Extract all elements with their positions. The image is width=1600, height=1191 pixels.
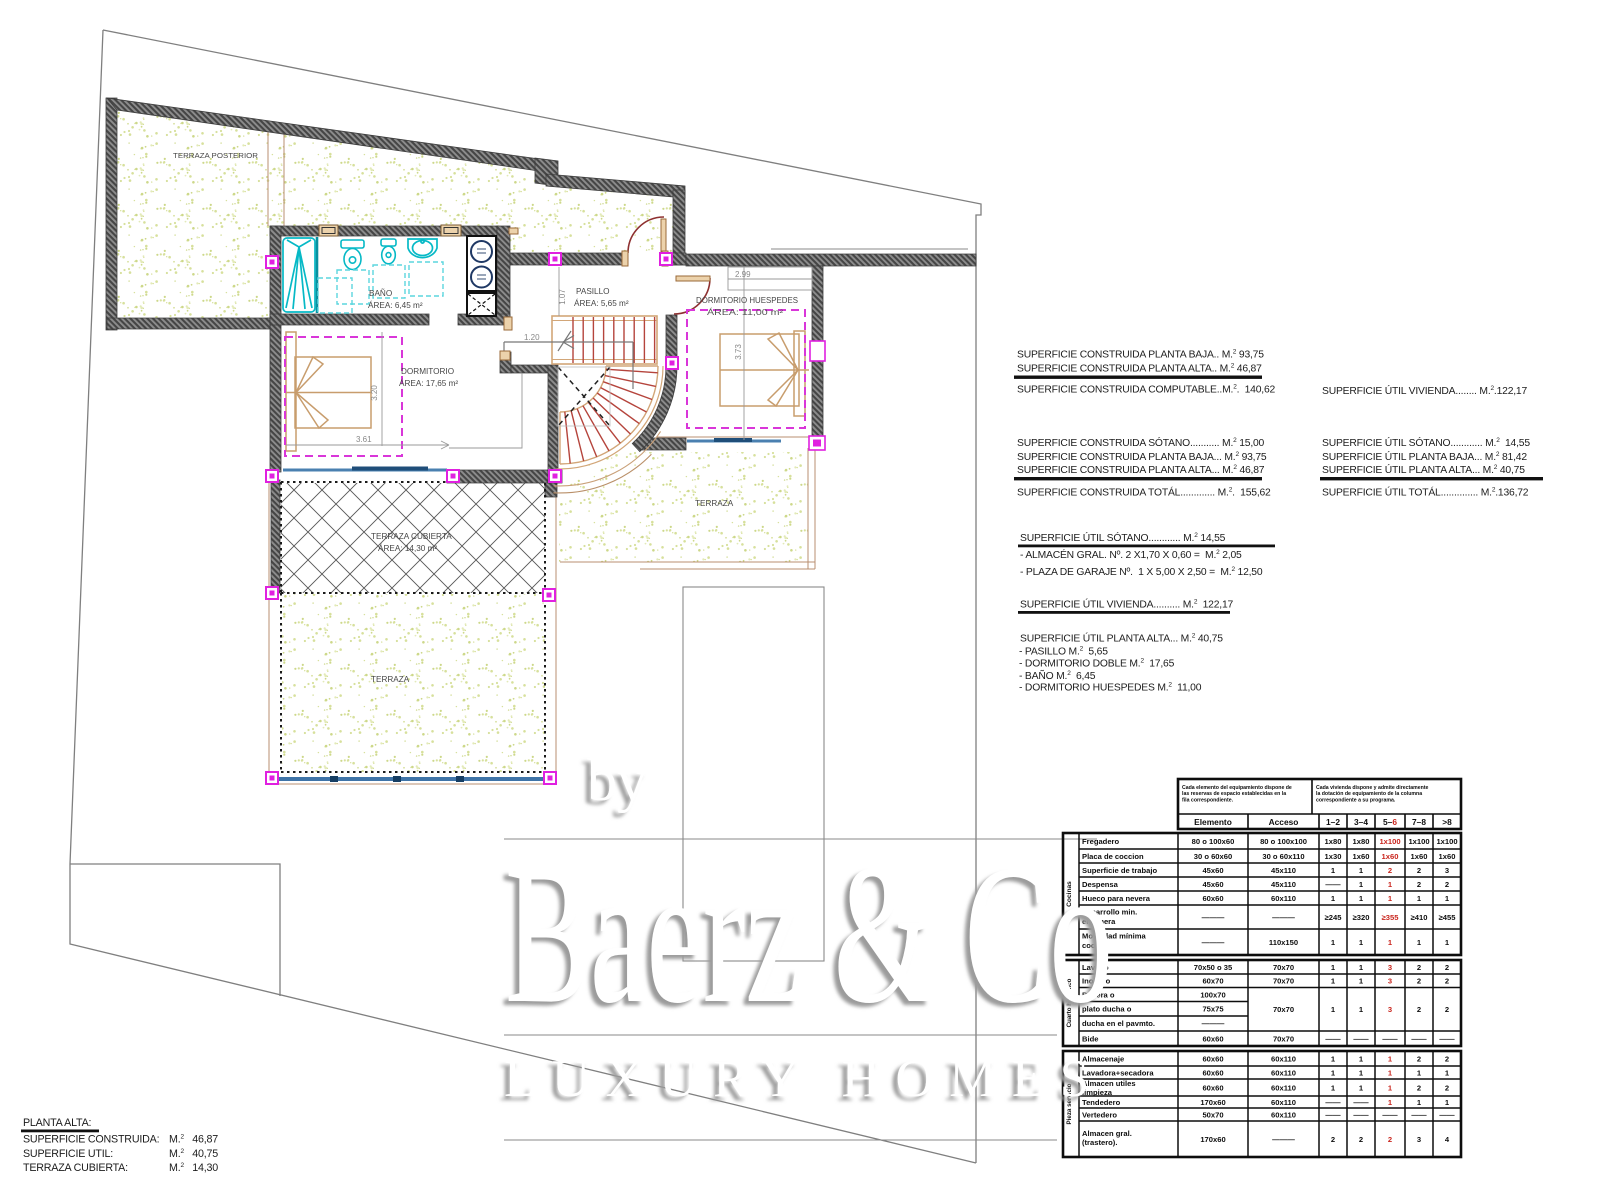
svg-text:——: —— [1382, 1034, 1398, 1043]
svg-text:——: —— [1353, 1110, 1369, 1119]
svg-text:by: by [587, 747, 647, 813]
svg-text:SUPERFICIE ÚTIL TOTÁL.........: SUPERFICIE ÚTIL TOTÁL.............. M.2.… [1322, 486, 1529, 499]
svg-text:3: 3 [1388, 977, 1392, 986]
svg-text:SUPERFICIE UTIL:: SUPERFICIE UTIL: [23, 1148, 113, 1160]
svg-text:2: 2 [1417, 1083, 1421, 1092]
svg-text:5–6: 5–6 [1383, 817, 1397, 827]
svg-text:SUPERFICIE CONSTRUIDA COMPUTAB: SUPERFICIE CONSTRUIDA COMPUTABLE..M.2. 1… [1017, 384, 1276, 396]
svg-text:2: 2 [1417, 1054, 1421, 1063]
svg-text:——: —— [1325, 1034, 1341, 1043]
svg-text:60x110: 60x110 [1271, 1083, 1296, 1092]
svg-text:PASILLO: PASILLO [576, 287, 610, 296]
svg-text:- DORMITORIO HUESPEDES M.2 11: - DORMITORIO HUESPEDES M.2 11,00 [1019, 682, 1202, 694]
svg-text:60x110: 60x110 [1271, 1054, 1296, 1063]
svg-text:1x60: 1x60 [1382, 852, 1399, 861]
svg-text:2: 2 [1417, 977, 1421, 986]
svg-text:- DORMITORIO DOBLE M.2 17,65: - DORMITORIO DOBLE M.2 17,65 [1019, 658, 1175, 670]
svg-text:60x110: 60x110 [1271, 1068, 1296, 1077]
svg-text:3.20: 3.20 [370, 385, 379, 401]
svg-text:1x100: 1x100 [1379, 837, 1400, 846]
svg-text:30 o 60x110: 30 o 60x110 [1262, 852, 1304, 861]
svg-text:30 o 60x60: 30 o 60x60 [1194, 852, 1232, 861]
svg-text:Cada elemento del equipamiento: Cada elemento del equipamiento dispone d… [1182, 785, 1292, 791]
svg-text:——: —— [1439, 1110, 1455, 1119]
svg-text:LUXURY HOMES: LUXURY HOMES [504, 1050, 1105, 1108]
svg-text:PLANTA ALTA:: PLANTA ALTA: [23, 1117, 91, 1129]
svg-text:110x150: 110x150 [1269, 938, 1298, 947]
svg-text:45x60: 45x60 [1202, 880, 1223, 889]
svg-text:2: 2 [1331, 1135, 1335, 1144]
svg-text:SUPERFICIE ÚTIL VIVIENDA......: SUPERFICIE ÚTIL VIVIENDA........ M.2.122… [1322, 384, 1527, 397]
svg-text:1x100: 1x100 [1408, 837, 1429, 846]
svg-text:70x70: 70x70 [1273, 963, 1294, 972]
svg-text:TERRAZA: TERRAZA [695, 499, 734, 508]
svg-text:——: —— [1382, 1110, 1398, 1119]
svg-text:——: —— [1325, 1098, 1341, 1107]
svg-text:2: 2 [1417, 866, 1421, 875]
svg-text:3: 3 [1445, 866, 1449, 875]
svg-text:——: —— [1439, 1034, 1455, 1043]
svg-text:2: 2 [1445, 963, 1449, 972]
svg-text:1–2: 1–2 [1326, 817, 1340, 827]
svg-text:45x60: 45x60 [1202, 866, 1223, 875]
svg-text:DORMITORIO HUESPEDES: DORMITORIO HUESPEDES [696, 296, 798, 305]
svg-text:———: ——— [1202, 913, 1225, 922]
svg-text:——: —— [1325, 880, 1341, 889]
svg-text:60x60: 60x60 [1202, 1068, 1223, 1077]
svg-text:100x70: 100x70 [1200, 991, 1225, 1000]
svg-text:≥410: ≥410 [1411, 913, 1428, 922]
svg-text:SUPERFICIE CONSTRUIDA:: SUPERFICIE CONSTRUIDA: [23, 1134, 159, 1146]
svg-text:1x30: 1x30 [1325, 852, 1342, 861]
svg-text:M.2 46,87: M.2 46,87 [169, 1134, 218, 1146]
svg-text:M.2 14,30: M.2 14,30 [169, 1162, 218, 1174]
svg-text:ÁREA: 6,45 m²: ÁREA: 6,45 m² [368, 300, 423, 310]
svg-text:70x70: 70x70 [1273, 1005, 1294, 1014]
svg-text:1.20: 1.20 [524, 333, 540, 342]
svg-text:Acceso: Acceso [1269, 817, 1299, 827]
svg-text:——: —— [1353, 1034, 1369, 1043]
svg-text:ÁREA: 14,30 m²: ÁREA: 14,30 m² [378, 543, 437, 553]
svg-text:2: 2 [1445, 880, 1449, 889]
svg-text:Cada vivienda dispone y admite: Cada vivienda dispone y admite directame… [1316, 785, 1429, 791]
svg-text:1x80: 1x80 [1325, 837, 1342, 846]
svg-text:- PLAZA DE GARAJE Nº. 1 X 5,0: - PLAZA DE GARAJE Nº. 1 X 5,00 X 2,50 = … [1020, 566, 1263, 578]
svg-text:45x110: 45x110 [1271, 880, 1296, 889]
svg-text:1x60: 1x60 [1411, 852, 1428, 861]
svg-text:70x70: 70x70 [1273, 1034, 1294, 1043]
svg-text:correspondiente a su programa.: correspondiente a su programa. [1316, 797, 1396, 803]
svg-text:1.07: 1.07 [558, 289, 567, 305]
svg-text:SUPERFICIE CONSTRUIDA PLANTA B: SUPERFICIE CONSTRUIDA PLANTA BAJA.. M.2 … [1017, 349, 1264, 361]
svg-text:3–4: 3–4 [1354, 817, 1368, 827]
svg-text:60x110: 60x110 [1271, 1110, 1296, 1119]
svg-text:60x60: 60x60 [1202, 894, 1223, 903]
svg-text:>8: >8 [1442, 817, 1452, 827]
svg-text:60x60: 60x60 [1202, 1054, 1223, 1063]
svg-text:ÁREA: 5,65 m²: ÁREA: 5,65 m² [574, 298, 629, 308]
svg-text:———: ——— [1272, 1135, 1295, 1144]
svg-text:2: 2 [1359, 1135, 1363, 1144]
svg-text:3: 3 [1417, 1135, 1421, 1144]
svg-text:2: 2 [1417, 880, 1421, 889]
svg-text:2.99: 2.99 [735, 270, 751, 279]
svg-text:7–8: 7–8 [1412, 817, 1426, 827]
svg-text:≥320: ≥320 [1353, 913, 1370, 922]
svg-text:TERRAZA: TERRAZA [371, 675, 410, 684]
svg-text:2: 2 [1417, 1005, 1421, 1014]
svg-text:170x60: 170x60 [1200, 1098, 1225, 1107]
svg-text:80 o 100x100: 80 o 100x100 [1260, 837, 1307, 846]
svg-text:≥355: ≥355 [1382, 913, 1400, 922]
svg-text:2: 2 [1445, 1005, 1449, 1014]
svg-text:TERRAZA CUBIERTA:: TERRAZA CUBIERTA: [23, 1162, 128, 1174]
svg-text:1x80: 1x80 [1353, 837, 1370, 846]
svg-text:60x110: 60x110 [1271, 1098, 1296, 1107]
svg-text:1x60: 1x60 [1353, 852, 1370, 861]
svg-text:ÁREA: 17,65 m²: ÁREA: 17,65 m² [399, 378, 458, 388]
svg-text:fila correspondiente.: fila correspondiente. [1182, 797, 1234, 803]
svg-text:SUPERFICIE ÚTIL SÓTANO........: SUPERFICIE ÚTIL SÓTANO............ M.2 1… [1322, 436, 1530, 449]
svg-text:3.73: 3.73 [734, 344, 743, 360]
svg-text:3: 3 [1388, 1005, 1392, 1014]
svg-text:75x75: 75x75 [1202, 1005, 1224, 1014]
svg-text:SUPERFICIE ÚTIL VIVIENDA......: SUPERFICIE ÚTIL VIVIENDA.......... M.2 1… [1020, 598, 1233, 611]
svg-text:70x70: 70x70 [1273, 977, 1294, 986]
svg-text:3: 3 [1388, 963, 1392, 972]
svg-text:2: 2 [1388, 1135, 1392, 1144]
svg-text:TERRAZA CUBIERTA: TERRAZA CUBIERTA [371, 532, 452, 541]
svg-text:2: 2 [1445, 1054, 1449, 1063]
svg-text:60x110: 60x110 [1271, 894, 1296, 903]
svg-text:Vertedero: Vertedero [1082, 1110, 1117, 1119]
svg-text:——: —— [1325, 1110, 1341, 1119]
svg-text:———: ——— [1202, 938, 1225, 947]
svg-text:Baerz & Co: Baerz & Co [505, 825, 1113, 1045]
svg-text:M.2 40,75: M.2 40,75 [169, 1148, 218, 1160]
svg-text:ÁREA: 11,00 m²: ÁREA: 11,00 m² [707, 308, 784, 317]
svg-text:1x60: 1x60 [1439, 852, 1456, 861]
svg-text:BAÑO: BAÑO [369, 288, 392, 298]
svg-text:≥245: ≥245 [1325, 913, 1343, 922]
svg-text:- BAÑO M.2 6,45: - BAÑO M.2 6,45 [1019, 669, 1096, 682]
svg-text:SUPERFICIE CONSTRUIDA PLANTA B: SUPERFICIE CONSTRUIDA PLANTA BAJA... M.2… [1017, 451, 1267, 463]
svg-text:SUPERFICIE CONSTRUIDA PLANTA A: SUPERFICIE CONSTRUIDA PLANTA ALTA... M.2… [1017, 464, 1265, 476]
svg-text:——: —— [1411, 1034, 1427, 1043]
svg-text:2: 2 [1388, 866, 1392, 875]
svg-text:60x60: 60x60 [1202, 1034, 1223, 1043]
svg-text:TERRAZA POSTERIOR: TERRAZA POSTERIOR [173, 151, 259, 160]
svg-text:70x50 o 35: 70x50 o 35 [1194, 963, 1233, 972]
svg-text:2: 2 [1417, 963, 1421, 972]
svg-text:———: ——— [1272, 913, 1295, 922]
svg-text:———: ——— [1202, 1019, 1225, 1028]
svg-text:(trastero).: (trastero). [1082, 1138, 1117, 1147]
svg-text:Almacen gral.: Almacen gral. [1082, 1129, 1132, 1138]
svg-text:3.61: 3.61 [356, 435, 372, 444]
svg-text:Elemento: Elemento [1194, 817, 1232, 827]
svg-text:- ALMACÉN GRAL. Nº. 2 X1,70 X: - ALMACÉN GRAL. Nº. 2 X1,70 X 0,60 = M.2… [1020, 548, 1242, 561]
svg-text:la dotación de equipamiento de: la dotación de equipamiento de la column… [1316, 791, 1422, 797]
svg-text:SUPERFICIE CONSTRUIDA SÓTANO..: SUPERFICIE CONSTRUIDA SÓTANO........... … [1017, 436, 1265, 449]
svg-text:- PASILLO M.2 5,65: - PASILLO M.2 5,65 [1019, 646, 1108, 658]
svg-text:las reservas de espacio establ: las reservas de espacio establecidas en … [1182, 791, 1286, 797]
svg-text:60x60: 60x60 [1202, 1083, 1223, 1092]
svg-text:1x100: 1x100 [1436, 837, 1457, 846]
svg-text:170x60: 170x60 [1200, 1135, 1225, 1144]
svg-text:——: —— [1411, 1110, 1427, 1119]
svg-text:80 o 100x60: 80 o 100x60 [1192, 837, 1235, 846]
svg-text:2: 2 [1445, 977, 1449, 986]
svg-text:45x110: 45x110 [1271, 866, 1296, 875]
svg-text:≥455: ≥455 [1439, 913, 1457, 922]
svg-text:——: —— [1353, 1098, 1369, 1107]
svg-text:2: 2 [1445, 1083, 1449, 1092]
svg-text:DORMITORIO: DORMITORIO [401, 367, 454, 376]
svg-text:SUPERFICIE CONSTRUIDA TOTÁL...: SUPERFICIE CONSTRUIDA TOTÁL.............… [1017, 486, 1271, 499]
svg-text:50x70: 50x70 [1202, 1110, 1223, 1119]
svg-text:60x70: 60x70 [1202, 977, 1223, 986]
svg-text:SUPERFICIE CONSTRUIDA PLANTA A: SUPERFICIE CONSTRUIDA PLANTA ALTA.. M.2 … [1017, 363, 1262, 375]
